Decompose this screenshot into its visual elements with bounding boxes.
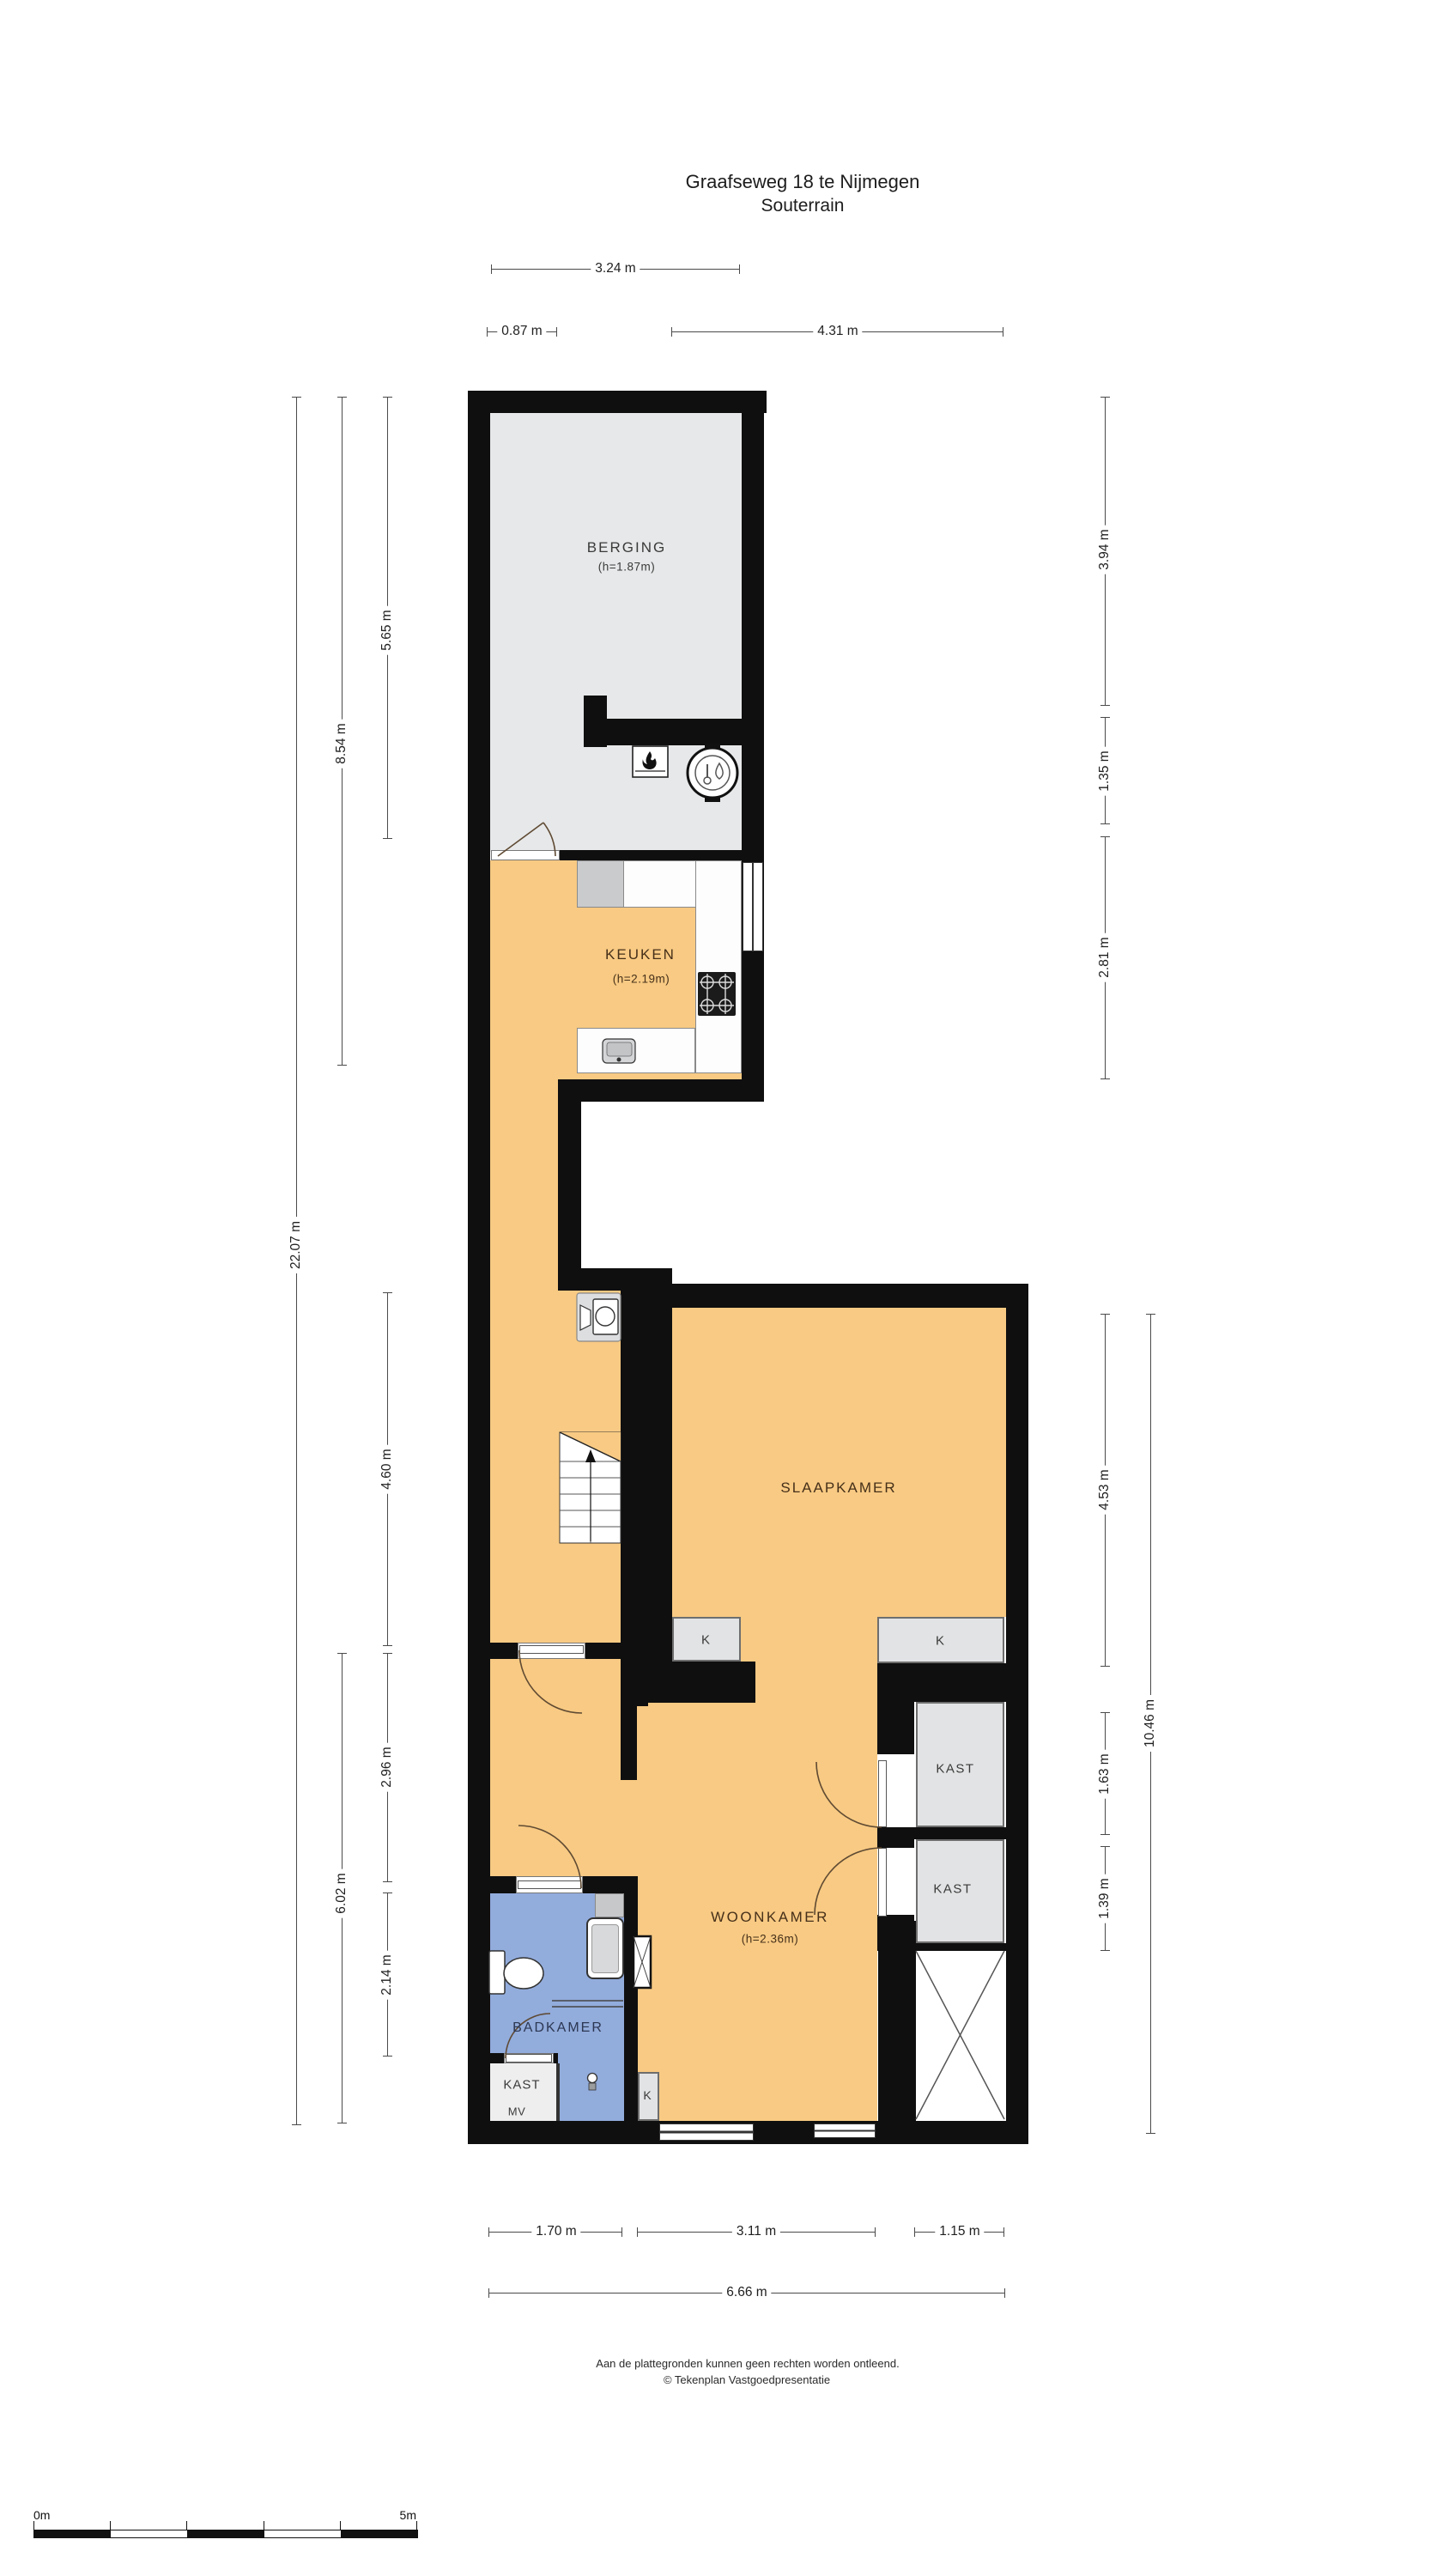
- wall-stairs-right: [621, 1268, 672, 1668]
- dim-right-4-53: 4.53 m: [1101, 1314, 1109, 1667]
- door-opening-berging: [491, 850, 560, 860]
- wall-right-lower: [1006, 1284, 1028, 2144]
- wall-top: [468, 391, 767, 413]
- dim-right-1-39: 1.39 m: [1101, 1846, 1109, 1951]
- dim-left-5-65: 5.65 m: [384, 397, 391, 839]
- closet-label-k-left: K: [701, 1633, 710, 1648]
- dim-right-2-81: 2.81 m: [1101, 836, 1109, 1079]
- dim-top-4-31: 4.31 m: [671, 328, 1003, 336]
- wall-keuken-bottom: [558, 1079, 764, 1102]
- door-leaf-badkamer-top: [518, 1880, 581, 1889]
- dim-left-8-54: 8.54 m: [338, 397, 346, 1066]
- scalebar-tick: [340, 2521, 341, 2530]
- wall-badkamer-right: [624, 1893, 638, 2121]
- scalebar-tick: [416, 2521, 417, 2530]
- scalebar-end-label: 5m: [400, 2508, 416, 2522]
- stove: [698, 972, 736, 1016]
- door-leaf-kast-1: [878, 1760, 887, 1827]
- window-woonkamer-2: [814, 2123, 876, 2138]
- wall-chunk-1: [621, 1666, 648, 1706]
- footer-copyright: © Tekenplan Vastgoedpresentatie: [664, 2373, 830, 2386]
- wall-chunk-2: [621, 1706, 637, 1780]
- kitchen-counter-right: [695, 860, 742, 1073]
- scalebar-tick: [186, 2521, 187, 2530]
- dim-right-10-46: 10.46 m: [1147, 1314, 1155, 2134]
- scalebar-tick: [110, 2521, 111, 2530]
- dim-right-1-35: 1.35 m: [1101, 717, 1109, 824]
- dim-left-6-02: 6.02 m: [338, 1653, 346, 2123]
- door-leaf-kast-2: [878, 1848, 887, 1917]
- room-label-keuken: KEUKEN: [605, 946, 676, 963]
- floor-woonkamer-left: [490, 1659, 621, 1876]
- closet-label-kast-2: KAST: [933, 1882, 972, 1897]
- dim-right-3-94: 3.94 m: [1101, 397, 1109, 706]
- wall-berging-keuken: [556, 850, 764, 860]
- floorplan-page: Graafseweg 18 te Nijmegen Souterrain: [0, 0, 1449, 2576]
- wall-kast-band: [914, 1827, 1006, 1839]
- page-title: Graafseweg 18 te Nijmegen: [686, 171, 920, 193]
- wall-kast-col-2: [877, 1827, 914, 1848]
- scalebar-start-label: 0m: [33, 2508, 50, 2522]
- dim-bottom-1-15: 1.15 m: [914, 2228, 1004, 2236]
- dim-right-1-63: 1.63 m: [1101, 1712, 1109, 1835]
- scalebar-tick: [264, 2521, 264, 2530]
- closet-label-kast-mv: KAST: [503, 2078, 540, 2093]
- floor-badkamer-ext: [558, 2089, 624, 2121]
- floor-slaapkamer: [672, 1308, 1006, 1617]
- footer-disclaimer: Aan de plattegronden kunnen geen rechten…: [596, 2357, 899, 2370]
- scalebar-tick: [33, 2521, 34, 2530]
- wall-kastmv-divider: [556, 2063, 560, 2121]
- door-leaf-corridor: [519, 1645, 584, 1654]
- floor-woonkamer-mid: [621, 1780, 637, 1876]
- wall-k-right-band: [914, 1663, 1006, 1702]
- wall-corridor-door-right: [584, 1643, 621, 1659]
- wall-corridor-right: [558, 1102, 581, 1291]
- closet-label-k-small: K: [643, 2088, 651, 2102]
- bathtub-inner: [591, 1924, 619, 1973]
- window-woonkamer-1: [659, 2123, 754, 2141]
- dim-left-4-60: 4.60 m: [384, 1292, 391, 1646]
- room-label-slaapkamer: SLAAPKAMER: [780, 1479, 896, 1497]
- wall-badkamer-top-right: [581, 1876, 638, 1893]
- wall-shaft-left: [878, 1921, 916, 2144]
- floor-slaapkamer-entry-2: [755, 1662, 877, 1703]
- dim-bottom-6-66: 6.66 m: [488, 2289, 1005, 2297]
- wall-kast-col-1: [877, 1663, 914, 1754]
- dim-top-0-87: 0.87 m: [487, 328, 557, 336]
- scalebar: [33, 2530, 418, 2538]
- wall-under-k: [648, 1662, 755, 1703]
- wall-right-upper: [742, 391, 764, 1102]
- page-subtitle: Souterrain: [761, 196, 845, 216]
- floor-corridor-lower: [558, 1291, 621, 1643]
- wall-berging-stub-h: [584, 719, 742, 745]
- wall-left: [468, 391, 490, 2144]
- closet-label-kast-1: KAST: [936, 1762, 974, 1777]
- room-label-berging: BERGING: [587, 539, 666, 556]
- room-label-badkamer: BADKAMER: [512, 2020, 603, 2036]
- floor-slaapkamer-entry: [741, 1617, 877, 1662]
- floor-corridor: [490, 1079, 558, 1643]
- dim-bottom-3-11: 3.11 m: [637, 2228, 876, 2236]
- window-keuken: [743, 862, 763, 951]
- shaft-void: [916, 1951, 1004, 2119]
- door-leaf-badkamer-bottom: [506, 2054, 552, 2063]
- dim-left-2-14: 2.14 m: [384, 1893, 391, 2057]
- dim-top-3-24: 3.24 m: [491, 265, 740, 273]
- dim-bottom-1-70: 1.70 m: [488, 2228, 622, 2236]
- floor-berging: [490, 413, 742, 852]
- closet-label-k-right: K: [936, 1634, 944, 1649]
- room-height-woonkamer: (h=2.36m): [742, 1933, 798, 1946]
- dim-left-2-96: 2.96 m: [384, 1653, 391, 1882]
- room-label-woonkamer: WOONKAMER: [711, 1909, 829, 1926]
- bath-shelf: [595, 1893, 624, 1917]
- kitchen-counter-grey: [577, 860, 624, 908]
- room-height-berging: (h=1.87m): [598, 561, 655, 574]
- room-height-keuken: (h=2.19m): [613, 973, 670, 986]
- wall-badkamer-top-left: [490, 1876, 518, 1893]
- wall-corridor-door-left: [490, 1643, 519, 1659]
- closet-label-mv: MV: [508, 2105, 526, 2118]
- dim-left-22-07: 22.07 m: [293, 397, 300, 2125]
- wall-slaapkamer-top: [622, 1284, 1028, 1308]
- kitchen-counter-sink: [577, 1028, 695, 1073]
